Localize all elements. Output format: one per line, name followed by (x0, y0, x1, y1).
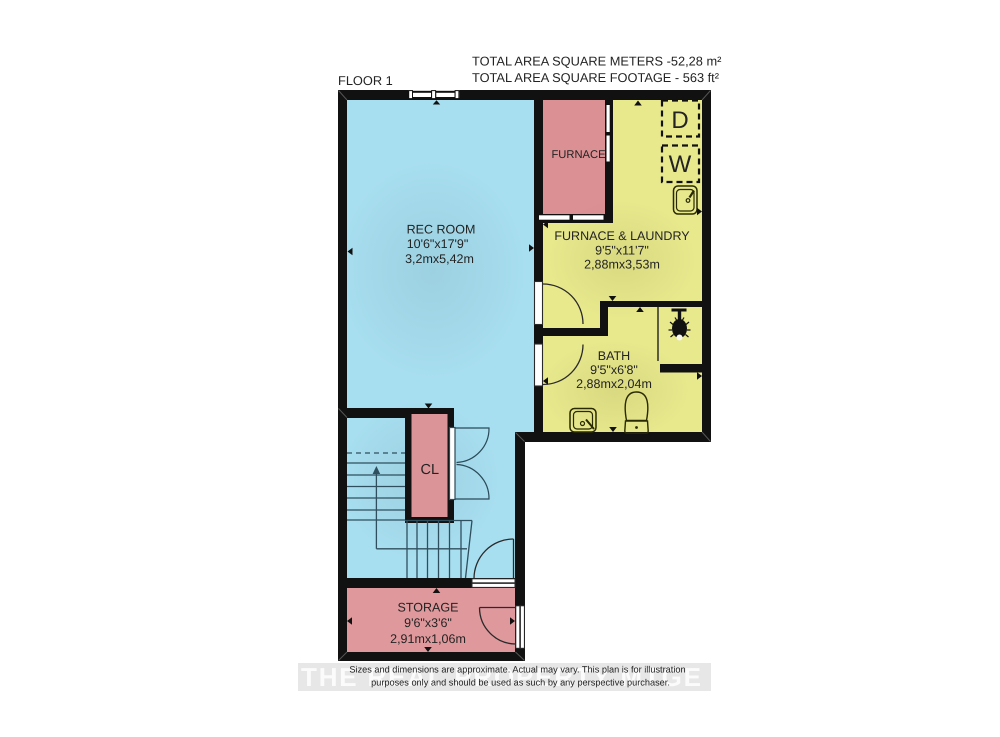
svg-text:STORAGE: STORAGE (398, 601, 459, 615)
svg-text:2,91mx1,06m: 2,91mx1,06m (390, 632, 466, 646)
svg-text:D: D (671, 107, 688, 134)
svg-text:9'5"x11'7": 9'5"x11'7" (595, 244, 649, 258)
svg-text:BATH: BATH (598, 349, 630, 363)
svg-text:FURNACE & LAUNDRY: FURNACE & LAUNDRY (554, 229, 690, 243)
svg-text:purposes only and should be us: purposes only and should be used as such… (371, 678, 670, 688)
svg-text:9'5"x6'8": 9'5"x6'8" (590, 363, 638, 377)
svg-text:FLOOR 1: FLOOR 1 (338, 73, 393, 88)
svg-text:Sizes and dimensions are appro: Sizes and dimensions are approximate. Ac… (349, 665, 685, 675)
svg-text:9'6"x3'6": 9'6"x3'6" (404, 616, 452, 630)
svg-text:TOTAL AREA SQUARE METERS -52,2: TOTAL AREA SQUARE METERS -52,28 m² (472, 54, 722, 69)
svg-text:2,88mx3,53m: 2,88mx3,53m (584, 258, 660, 272)
svg-text:FURNACE: FURNACE (551, 149, 605, 161)
svg-text:2,88mx2,04m: 2,88mx2,04m (576, 377, 652, 391)
svg-text:REC ROOM: REC ROOM (407, 223, 476, 237)
svg-text:W: W (669, 151, 692, 178)
svg-text:3,2mx5,42m: 3,2mx5,42m (405, 252, 474, 266)
svg-text:TOTAL AREA SQUARE FOOTAGE - 56: TOTAL AREA SQUARE FOOTAGE - 563 ft² (472, 70, 720, 85)
svg-text:CL: CL (421, 462, 440, 478)
svg-text:10'6"x17'9": 10'6"x17'9" (407, 237, 469, 251)
